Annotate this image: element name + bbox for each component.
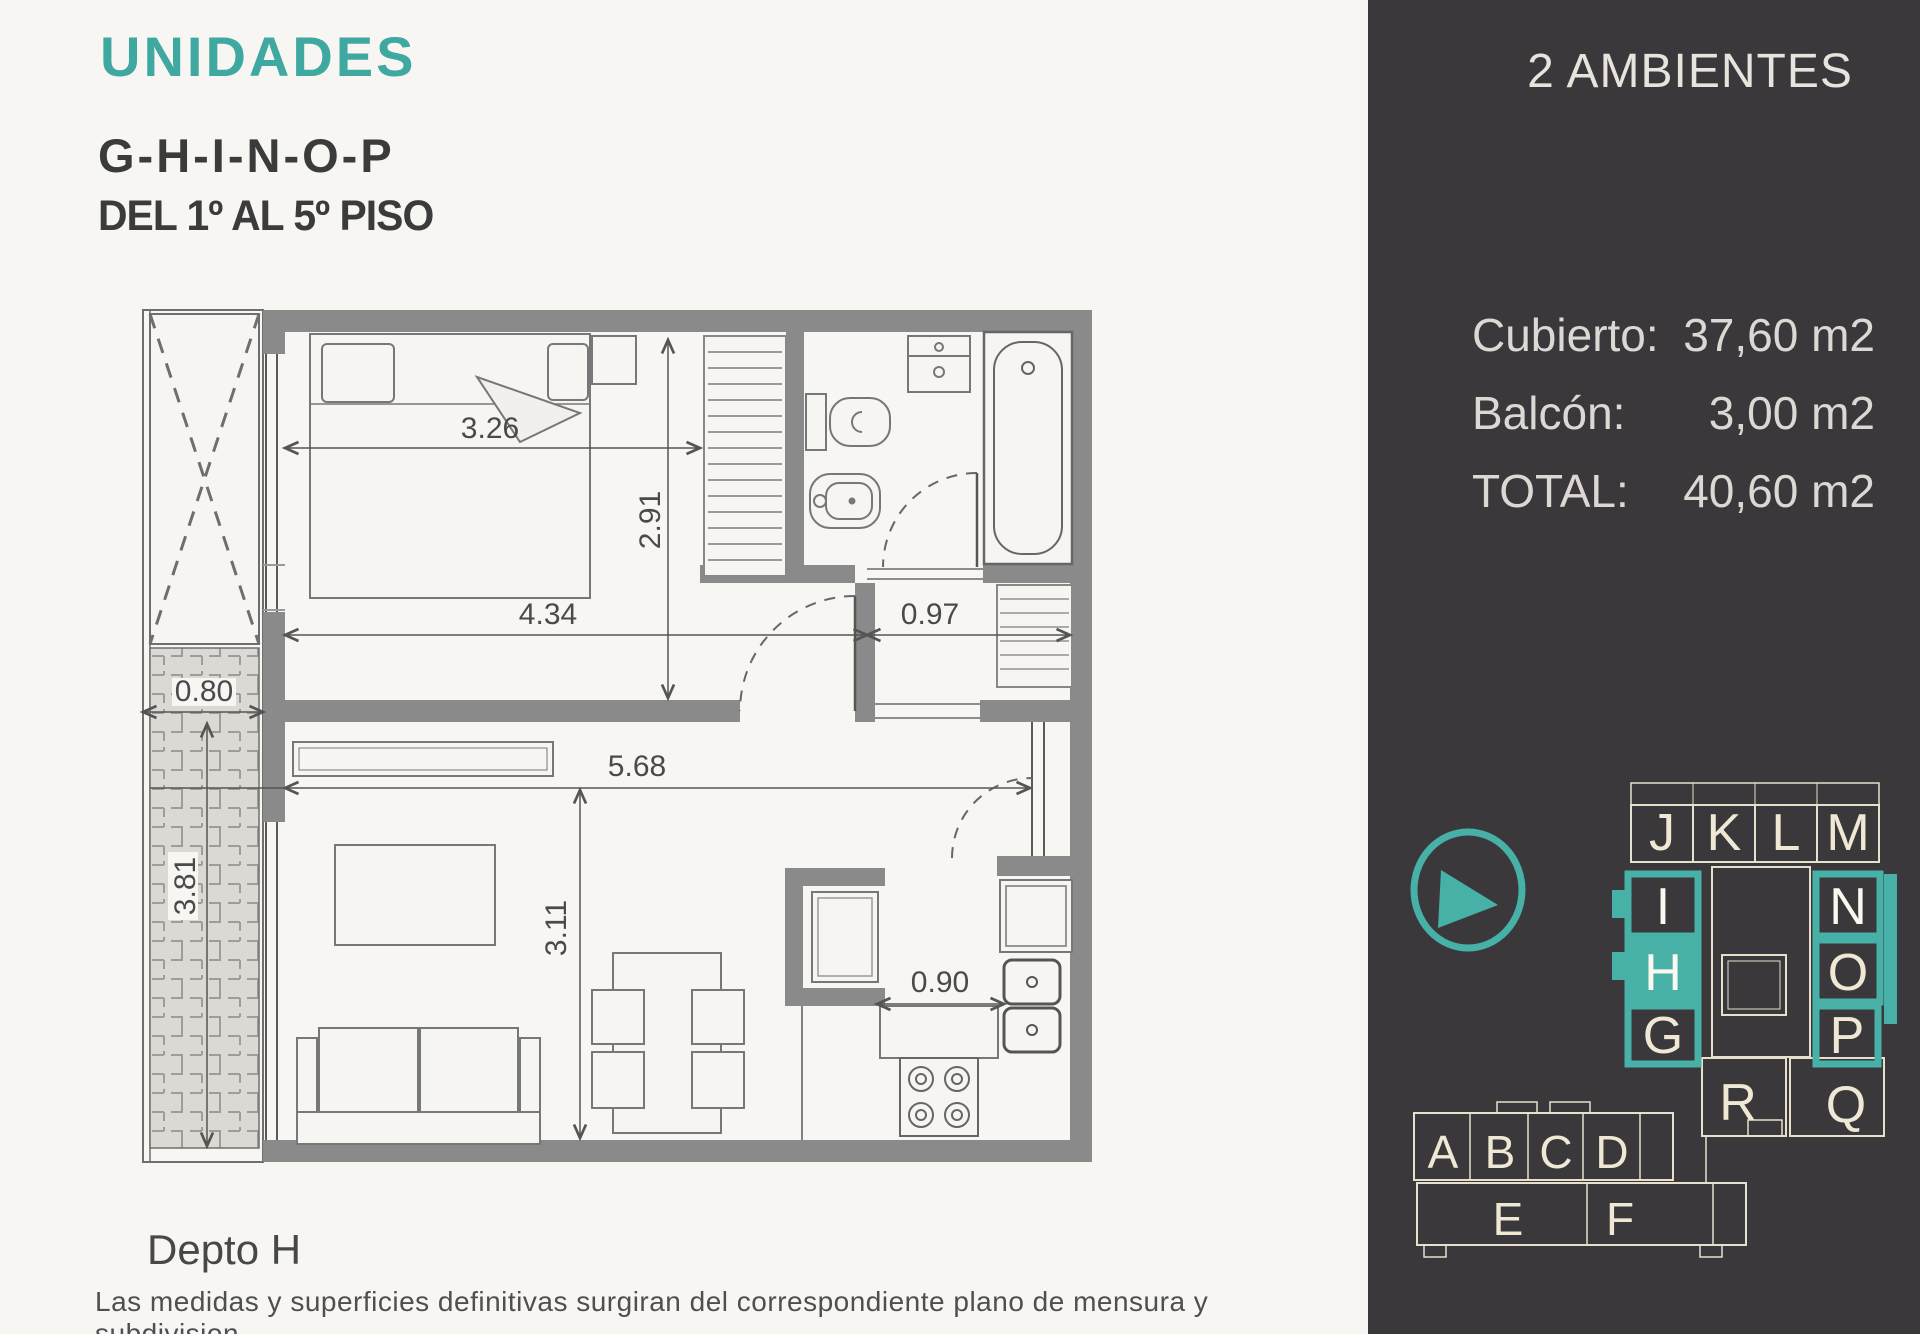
dim-balcony-door: 0.80 xyxy=(175,675,233,708)
area-label: Balcón: xyxy=(1472,374,1625,452)
bidet xyxy=(810,474,880,528)
svg-text:P: P xyxy=(1830,1007,1865,1065)
sideboard xyxy=(293,742,553,776)
svg-text:N: N xyxy=(1829,878,1867,936)
area-value: 3,00 m2 xyxy=(1709,374,1875,452)
chair xyxy=(692,1052,744,1108)
dim-living-width: 5.68 xyxy=(608,750,666,783)
area-value: 40,60 m2 xyxy=(1683,452,1875,530)
dim-bath-width: 0.97 xyxy=(901,598,959,631)
balcony-tiles xyxy=(150,648,259,1148)
chair xyxy=(592,1052,644,1108)
wardrobe xyxy=(704,336,786,576)
area-row-balcon: Balcón: 3,00 m2 xyxy=(1472,374,1875,452)
dim-bedroom-width: 4.34 xyxy=(519,598,577,631)
disclaimer-text: Las medidas y superficies definitivas su… xyxy=(95,1286,1345,1334)
svg-text:G: G xyxy=(1643,1007,1683,1065)
keyplan: J K L M I H G N O P R Q A B C D E F xyxy=(1400,770,1920,1294)
floor-plan: 3.26 2.91 4.34 0.97 0.80 3.81 5.68 3.11 … xyxy=(0,0,1368,1334)
fridge xyxy=(1000,880,1072,952)
svg-text:C: C xyxy=(1539,1126,1572,1178)
dim-bedroom-depth: 2.91 xyxy=(634,491,667,549)
chair xyxy=(692,990,744,1044)
chair xyxy=(592,990,644,1044)
kitchen-sink xyxy=(1004,960,1060,1052)
page: UNIDADES G-H-I-N-O-P DEL 1º AL 5º PISO xyxy=(0,0,1920,1334)
svg-text:F: F xyxy=(1606,1193,1634,1245)
kitchen-counter xyxy=(880,1006,998,1058)
thresholds xyxy=(867,569,983,718)
sidebar: 2 AMBIENTES Cubierto: 37,60 m2 Balcón: 3… xyxy=(1368,0,1920,1334)
svg-text:L: L xyxy=(1772,804,1801,862)
vanity-sink xyxy=(908,336,970,392)
dim-kitchen-counter: 0.90 xyxy=(911,966,969,999)
sofa xyxy=(297,1028,540,1144)
dining-table xyxy=(592,953,744,1133)
svg-text:M: M xyxy=(1826,804,1869,862)
bathtub xyxy=(984,332,1072,564)
svg-text:I: I xyxy=(1656,878,1670,936)
svg-text:H: H xyxy=(1644,944,1682,1002)
area-label: TOTAL: xyxy=(1472,452,1629,530)
area-summary: Cubierto: 37,60 m2 Balcón: 3,00 m2 TOTAL… xyxy=(1472,296,1875,530)
kitchen-door-swing xyxy=(952,778,1032,858)
tv-unit xyxy=(785,868,885,1006)
bathroom-door xyxy=(883,473,977,567)
svg-text:K: K xyxy=(1707,804,1742,862)
area-row-cubierto: Cubierto: 37,60 m2 xyxy=(1472,296,1875,374)
balcony xyxy=(143,310,263,1162)
svg-text:A: A xyxy=(1428,1126,1459,1178)
svg-text:D: D xyxy=(1595,1126,1628,1178)
area-value: 37,60 m2 xyxy=(1683,296,1875,374)
bedroom-door xyxy=(740,596,855,711)
svg-text:B: B xyxy=(1485,1126,1516,1178)
svg-text:E: E xyxy=(1493,1193,1524,1245)
nightstand xyxy=(592,336,636,384)
dim-living-depth: 3.11 xyxy=(540,900,573,956)
keyplan-letters: J K L M I H G N O P R Q A B C D E F xyxy=(1428,804,1870,1245)
area-row-total: TOTAL: 40,60 m2 xyxy=(1472,452,1875,530)
svg-text:J: J xyxy=(1649,804,1675,862)
unit-label: Depto H xyxy=(147,1226,301,1274)
dim-balcony-length: 3.81 xyxy=(169,857,202,915)
dim-bed-width: 3.26 xyxy=(461,412,519,445)
toilet xyxy=(806,394,890,450)
stove xyxy=(900,1058,978,1136)
svg-text:R: R xyxy=(1719,1074,1757,1132)
svg-text:Q: Q xyxy=(1826,1076,1866,1134)
bed xyxy=(310,334,636,598)
ambientes-header: 2 AMBIENTES xyxy=(1368,44,1920,99)
coffee-table xyxy=(335,845,495,945)
area-label: Cubierto: xyxy=(1472,296,1659,374)
hall-closet xyxy=(997,585,1072,687)
svg-text:O: O xyxy=(1828,944,1868,1002)
